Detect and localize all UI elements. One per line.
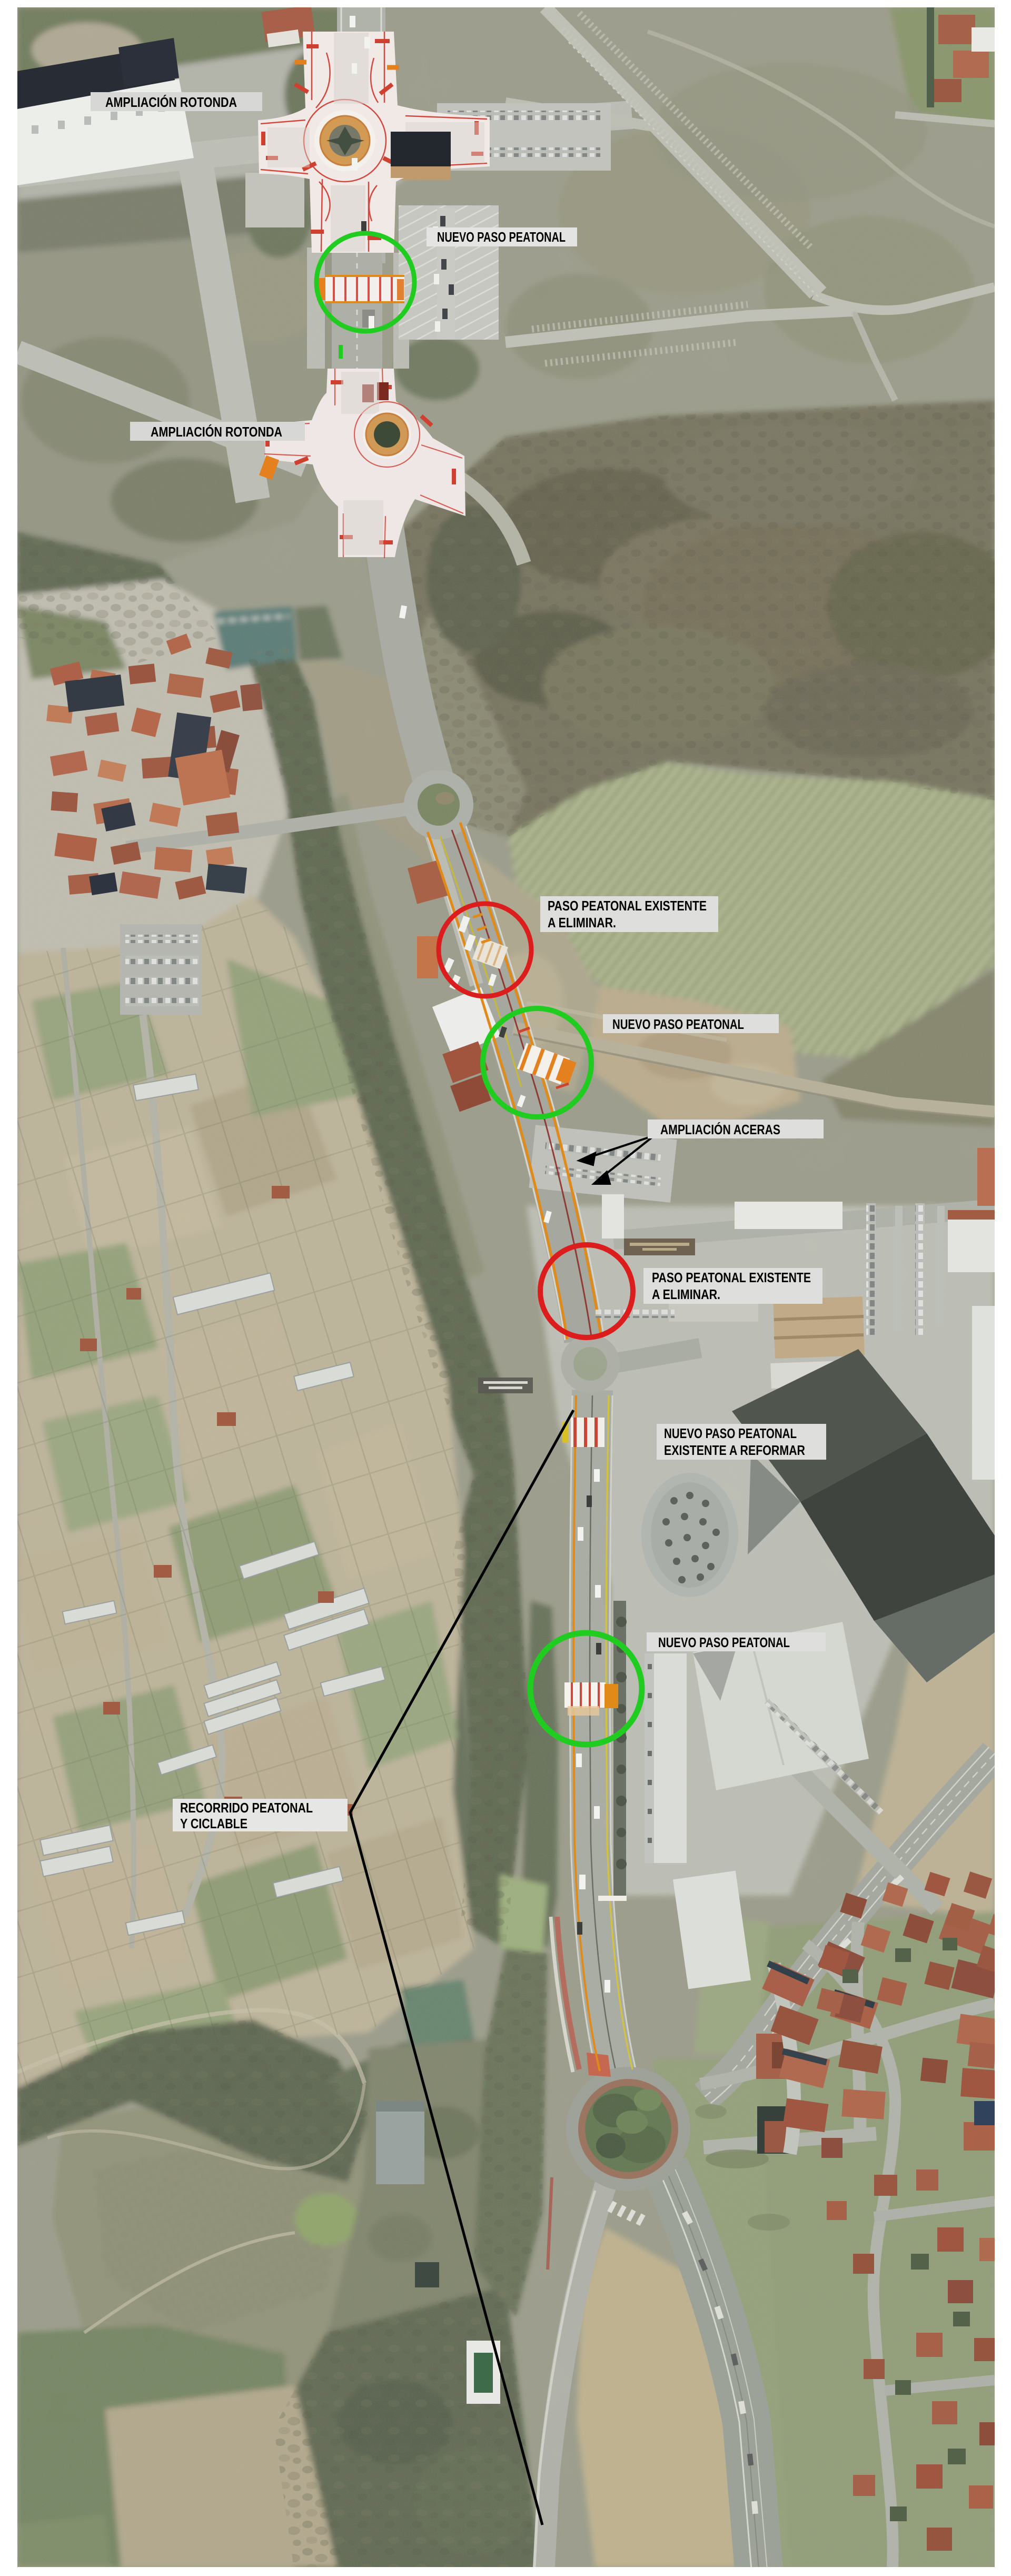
svg-text:AMPLIACIÓN ROTONDA: AMPLIACIÓN ROTONDA — [151, 424, 282, 440]
svg-text:EXISTENTE A REFORMAR: EXISTENTE A REFORMAR — [664, 1442, 805, 1458]
svg-text:RECORRIDO PEATONAL: RECORRIDO PEATONAL — [180, 1800, 313, 1816]
svg-text:Y CICLABLE: Y CICLABLE — [180, 1816, 247, 1831]
svg-text:PASO PEATONAL EXISTENTE: PASO PEATONAL EXISTENTE — [652, 1270, 811, 1285]
svg-text:AMPLIACIÓN ROTONDA: AMPLIACIÓN ROTONDA — [105, 94, 237, 110]
svg-text:NUEVO PASO PEATONAL: NUEVO PASO PEATONAL — [664, 1425, 797, 1441]
svg-text:PASO PEATONAL EXISTENTE: PASO PEATONAL EXISTENTE — [548, 898, 707, 914]
svg-text:NUEVO PASO PEATONAL: NUEVO PASO PEATONAL — [437, 229, 566, 245]
svg-text:NUEVO PASO PEATONAL: NUEVO PASO PEATONAL — [658, 1634, 790, 1650]
svg-text:A ELIMINAR.: A ELIMINAR. — [548, 915, 616, 930]
svg-text:NUEVO PASO PEATONAL: NUEVO PASO PEATONAL — [612, 1016, 744, 1032]
svg-text:AMPLIACIÓN ACERAS: AMPLIACIÓN ACERAS — [660, 1122, 780, 1137]
svg-text:A ELIMINAR.: A ELIMINAR. — [652, 1286, 720, 1302]
